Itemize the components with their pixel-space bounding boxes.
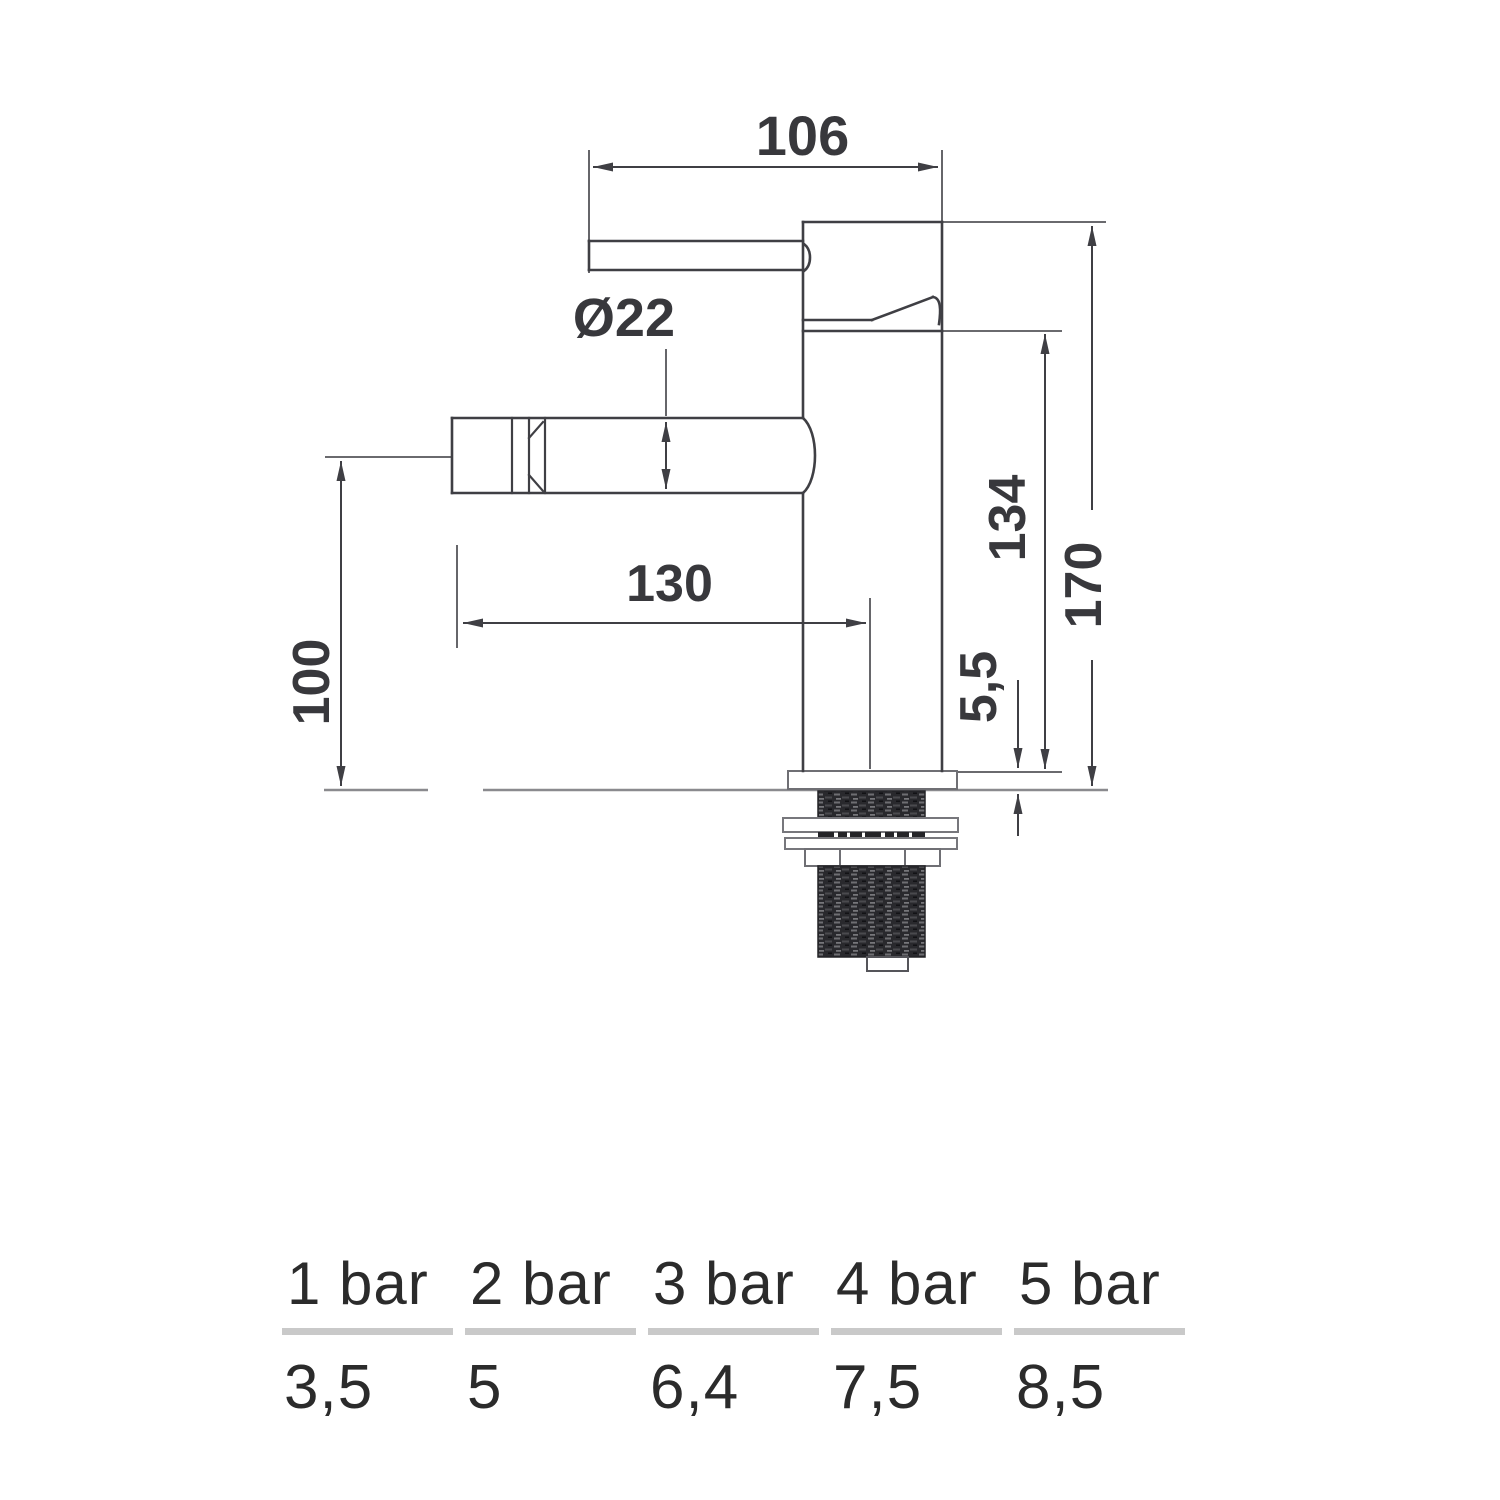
fastening-assembly [783, 791, 958, 971]
pressure-header: 1 bar [282, 1245, 453, 1328]
base-plate [788, 771, 957, 789]
dimension-label-spout-height: 100 [286, 607, 338, 757]
header-underline [465, 1328, 636, 1335]
header-underline [282, 1328, 453, 1335]
flow-value: 6,4 [648, 1356, 819, 1420]
technical-drawing-page: 106 Ø22 130 100 134 170 5,5 1 bar 3,5 2 … [0, 0, 1500, 1500]
dimension-label-spout-diameter: Ø22 [525, 291, 675, 345]
pressure-header: 4 bar [831, 1245, 1002, 1328]
shank-tail [867, 957, 908, 971]
pressure-header: 3 bar [648, 1245, 819, 1328]
flow-value: 7,5 [831, 1356, 1002, 1420]
flow-value: 5 [465, 1356, 636, 1420]
dimension-label-total-height: 170 [1058, 510, 1110, 660]
faucet-body [803, 222, 942, 771]
header-underline [831, 1328, 1002, 1335]
flow-column: 4 bar 7,5 [831, 1245, 1002, 1420]
upper-thread [818, 791, 925, 818]
flow-rate-table: 1 bar 3,5 2 bar 5 3 bar 6,4 4 bar 7,5 5 … [282, 1245, 1185, 1420]
mounting-nut [805, 849, 940, 866]
pressure-header: 5 bar [1014, 1245, 1185, 1328]
pressure-header: 2 bar [465, 1245, 636, 1328]
dimension-label-reach: 130 [592, 558, 747, 610]
washer-bottom [785, 838, 957, 849]
header-underline [648, 1328, 819, 1335]
header-underline [1014, 1328, 1185, 1335]
flow-column: 3 bar 6,4 [648, 1245, 819, 1420]
aerator-detail [512, 418, 545, 493]
dimension-label-base-thickness: 5,5 [953, 612, 1005, 762]
handle-lever [589, 241, 810, 271]
dimension-label-upper-height: 134 [982, 443, 1034, 593]
dimension-label-spout-length: 106 [725, 108, 880, 164]
spout [452, 418, 803, 493]
flow-value: 8,5 [1014, 1356, 1185, 1420]
flow-column: 2 bar 5 [465, 1245, 636, 1420]
flow-column: 5 bar 8,5 [1014, 1245, 1185, 1420]
threaded-shank [818, 866, 925, 957]
flow-column: 1 bar 3,5 [282, 1245, 453, 1420]
washer-top [783, 818, 958, 832]
flow-value: 3,5 [282, 1356, 453, 1420]
